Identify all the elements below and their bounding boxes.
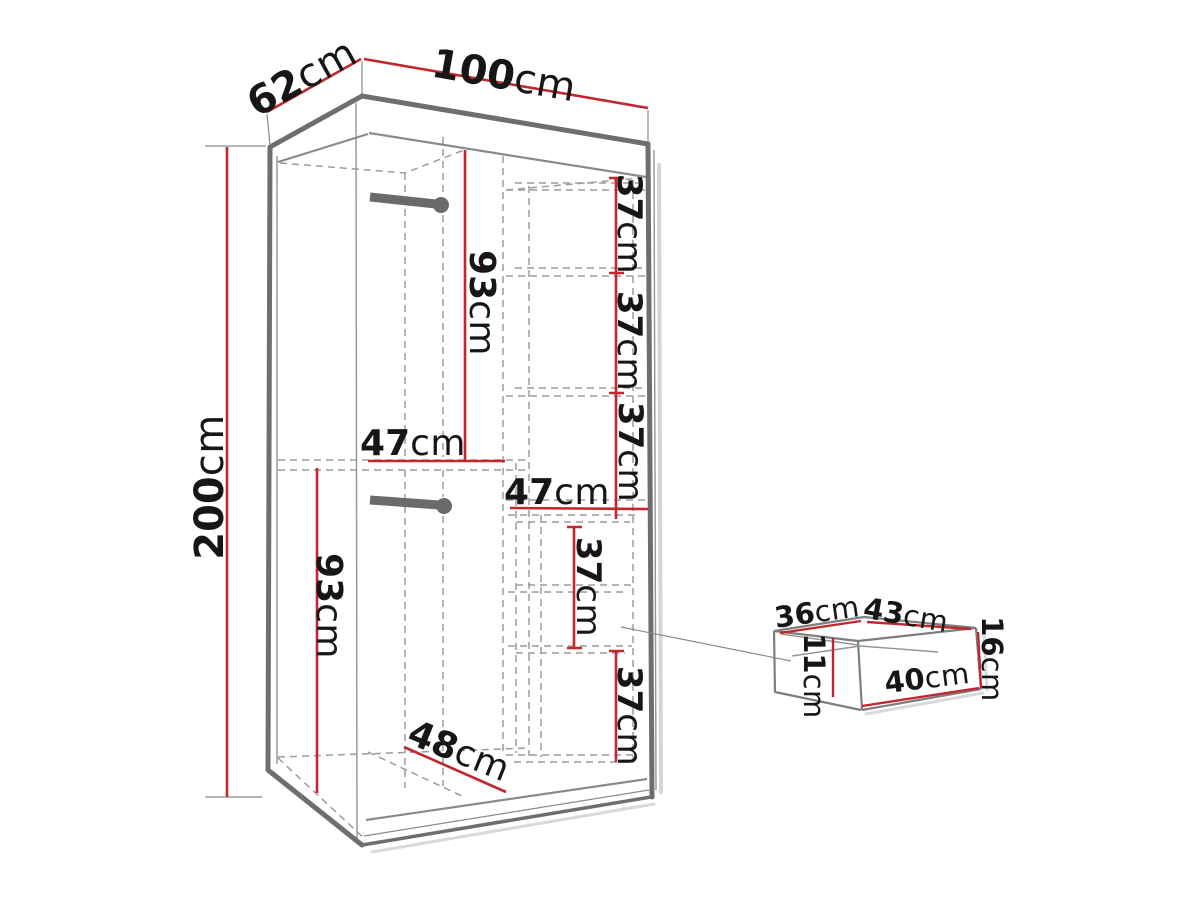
label-drawer-16: 16cm	[975, 616, 1009, 702]
edge-right-outer-double	[654, 150, 656, 790]
upper-rod-end-cap	[433, 197, 449, 213]
edge-left-stile-inner	[356, 103, 357, 842]
label-drawer-43: 43cm	[861, 591, 951, 639]
label-shelf-37-1: 37cm	[609, 174, 649, 274]
label-shelf-37-2-value: 37	[609, 291, 649, 338]
lower-rod-end-cap	[436, 498, 452, 514]
label-drawer-43-unit: cm	[901, 598, 951, 639]
label-left-47: 47cm	[360, 423, 466, 464]
label-shelf-37-3-unit: cm	[610, 449, 650, 502]
label-drawer-11: 11cm	[797, 633, 831, 719]
edge-outline-top	[362, 96, 648, 144]
label-width-100-unit: cm	[511, 55, 580, 111]
diagram-page: 62cm 100cm 200cm 93cm 47cm 37cm 37cm 37c…	[0, 0, 1200, 900]
dimension-ticks	[205, 61, 791, 797]
dimension-labels: 62cm 100cm 200cm 93cm 47cm 37cm 37cm 37c…	[187, 29, 1009, 789]
label-drawer-36: 36cm	[772, 589, 861, 635]
label-shelf-37-1-value: 37	[609, 174, 649, 221]
label-left-47-value: 47	[360, 423, 410, 464]
edge-left-band-bottom	[278, 134, 368, 162]
label-lower-hang-93: 93cm	[309, 553, 350, 659]
label-shelf-37-5: 37cm	[609, 666, 649, 766]
edge-outline-bottom	[362, 797, 651, 845]
label-shelf-37-5-value: 37	[609, 666, 649, 713]
upper-hanging-rod	[370, 197, 436, 204]
label-right-47-unit: cm	[554, 472, 610, 513]
label-width-100: 100cm	[428, 41, 579, 112]
lower-hanging-rod	[370, 500, 439, 505]
label-height-200-value: 200	[187, 476, 233, 560]
label-drawer-43-value: 43	[861, 591, 907, 631]
label-shelf-37-4-value: 37	[568, 537, 608, 584]
label-shelf-37-2-unit: cm	[609, 338, 649, 391]
label-drawer-40-unit: cm	[923, 656, 972, 695]
label-upper-hang-93-unit: cm	[462, 300, 503, 356]
label-shelf-37-3: 37cm	[610, 402, 650, 502]
dashed-floor-left-recede	[278, 758, 366, 840]
label-shelf-37-4: 37cm	[568, 537, 608, 637]
edge-top-band-bottom	[369, 133, 646, 177]
wardrobe-dimension-diagram: 62cm 100cm 200cm 93cm 47cm 37cm 37cm 37c…	[0, 0, 1200, 900]
label-drawer-16-unit: cm	[975, 657, 1009, 702]
label-drawer-40-value: 40	[882, 661, 926, 700]
label-upper-hang-93-value: 93	[462, 250, 503, 300]
label-shelf-37-2: 37cm	[609, 291, 649, 391]
label-shelf-37-4-unit: cm	[568, 584, 608, 637]
hanging-rods	[370, 197, 452, 514]
label-drawer-16-value: 16	[975, 616, 1009, 656]
label-shelf-37-5-unit: cm	[609, 713, 649, 766]
label-floor-48: 48cm	[402, 712, 516, 790]
label-shelf-37-1-unit: cm	[609, 221, 649, 274]
drawer-pointer-line	[621, 627, 791, 661]
label-drawer-11-unit: cm	[797, 674, 831, 719]
shadow-right	[659, 165, 661, 792]
drawer-front-left-edge	[858, 641, 862, 710]
label-lower-hang-93-value: 93	[309, 553, 350, 603]
label-height-200-unit: cm	[187, 414, 233, 476]
label-drawer-11-value: 11	[797, 633, 831, 673]
label-right-47-value: 47	[504, 472, 554, 513]
label-left-47-unit: cm	[410, 423, 466, 464]
label-lower-hang-93-unit: cm	[309, 603, 350, 659]
label-shelf-37-3-value: 37	[610, 402, 650, 449]
label-height-200: 200cm	[187, 414, 233, 559]
label-upper-hang-93: 93cm	[462, 250, 503, 356]
label-drawer-36-unit: cm	[812, 589, 861, 629]
label-right-47: 47cm	[504, 472, 610, 513]
label-depth-62: 62cm	[239, 29, 364, 126]
label-width-100-value: 100	[428, 41, 518, 101]
label-drawer-36-value: 36	[772, 596, 817, 635]
